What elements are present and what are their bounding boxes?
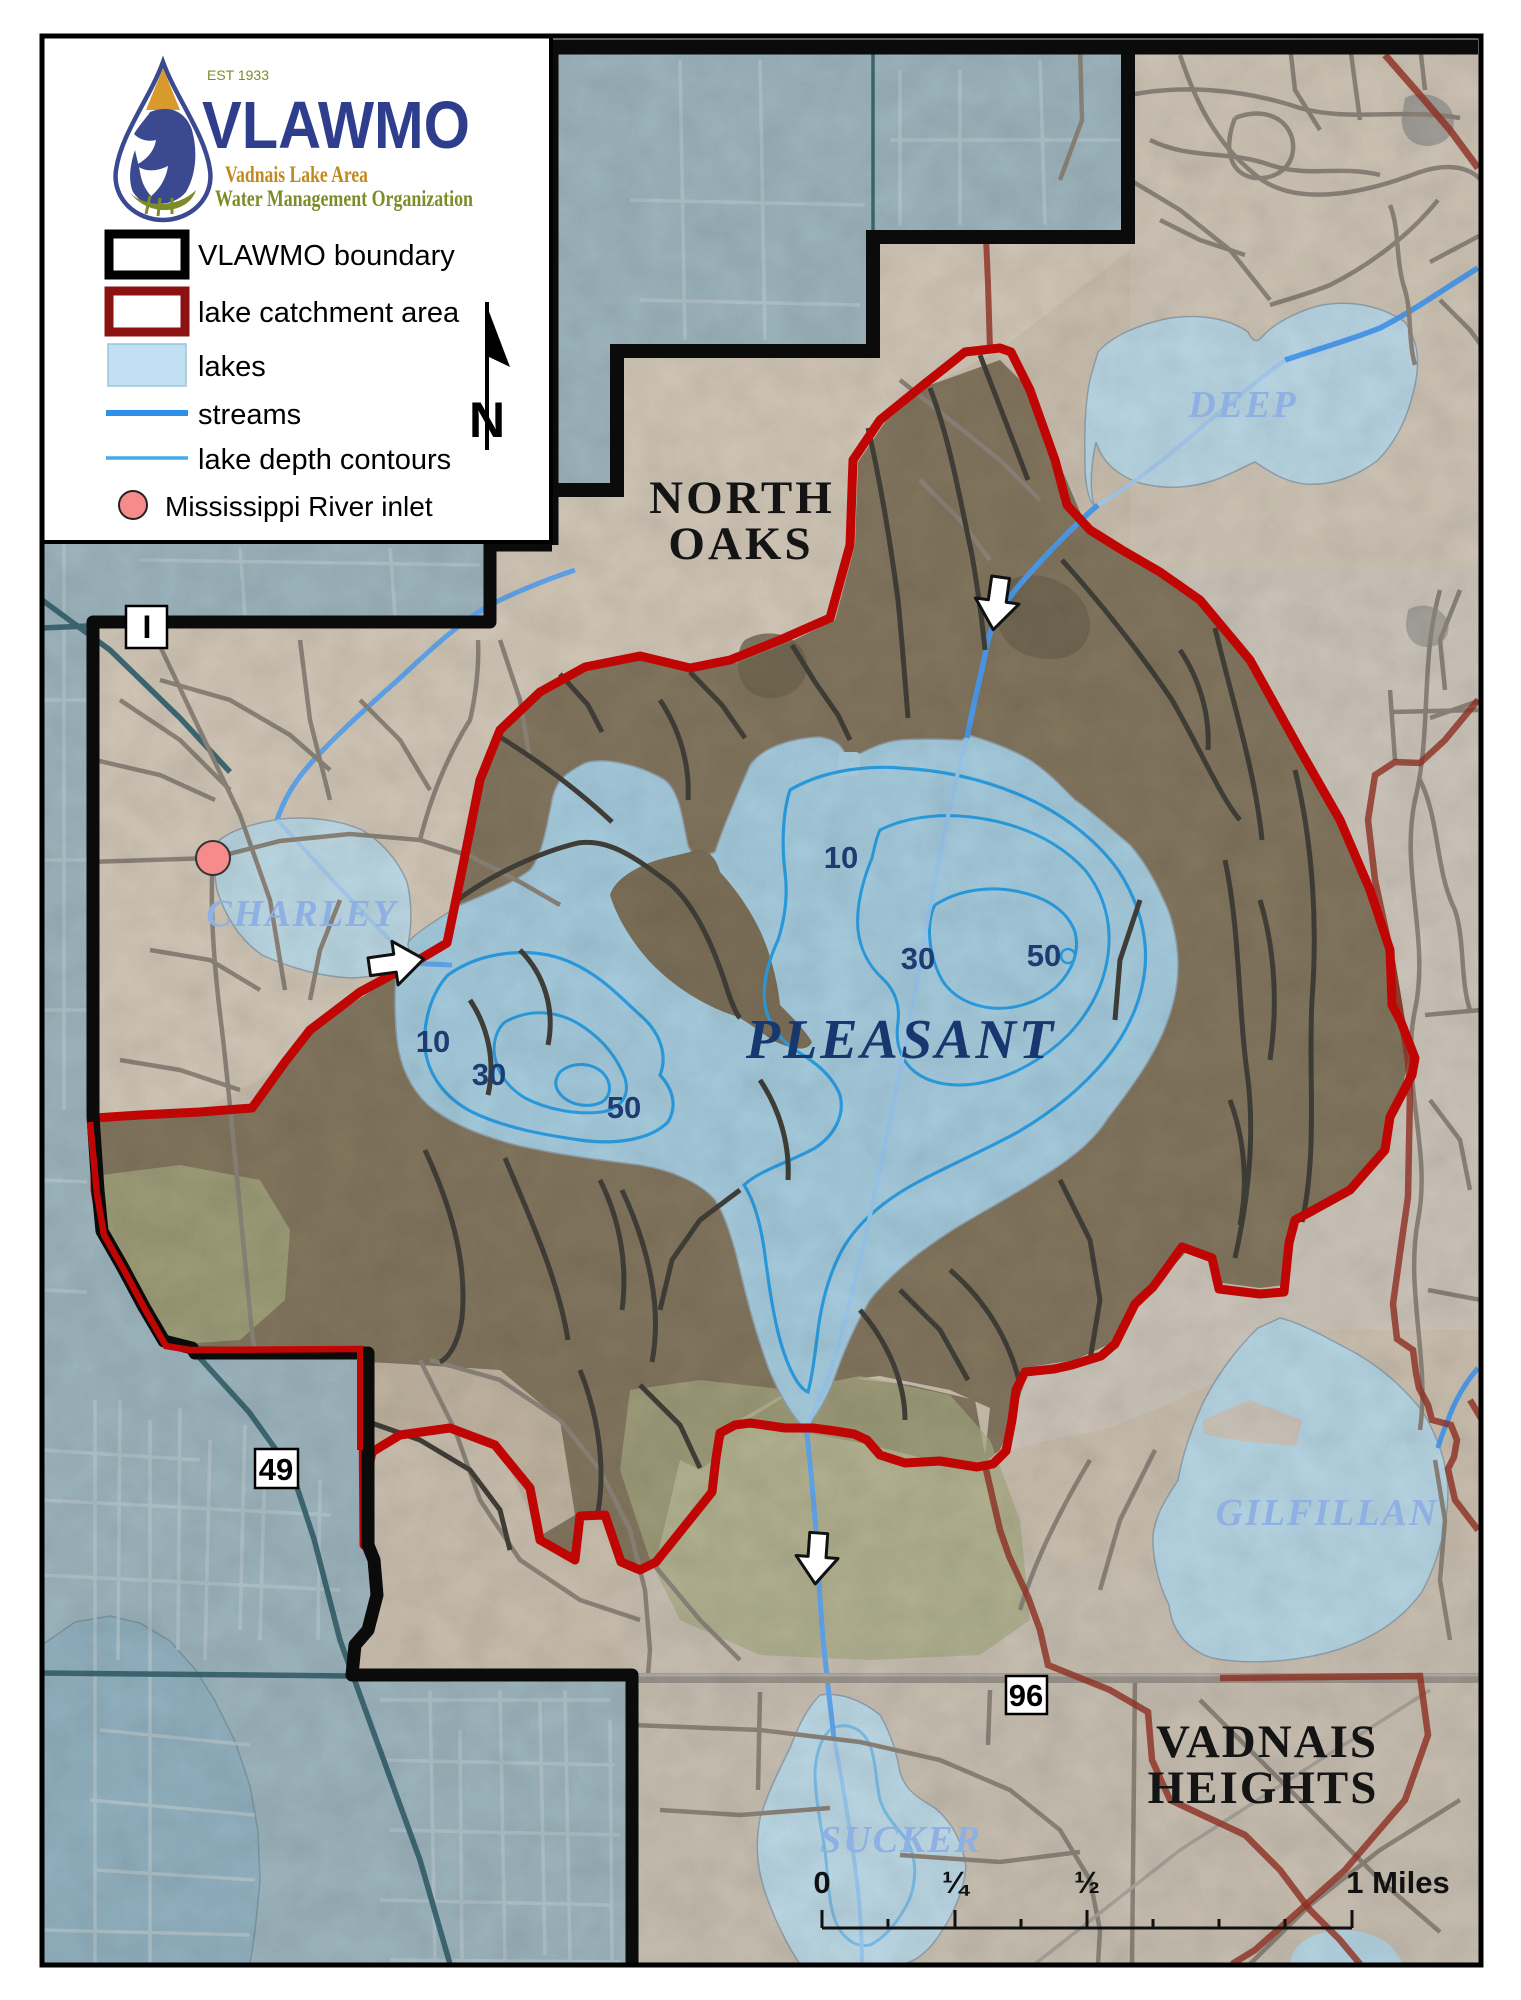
svg-text:50: 50 bbox=[1027, 938, 1061, 973]
svg-text:DEEP: DEEP bbox=[1187, 384, 1297, 426]
svg-text:NORTH: NORTH bbox=[649, 472, 835, 524]
svg-text:Mississippi River inlet: Mississippi River inlet bbox=[165, 491, 433, 522]
svg-text:CHARLEY: CHARLEY bbox=[206, 893, 399, 935]
svg-text:SUCKER: SUCKER bbox=[820, 1819, 982, 1861]
svg-text:10: 10 bbox=[824, 840, 858, 875]
svg-text:lake depth contours: lake depth contours bbox=[198, 444, 451, 476]
svg-text:96: 96 bbox=[1009, 1678, 1043, 1713]
svg-text:50: 50 bbox=[607, 1090, 641, 1125]
svg-text:HEIGHTS: HEIGHTS bbox=[1148, 1762, 1379, 1814]
svg-text:1 Miles: 1 Miles bbox=[1346, 1865, 1449, 1900]
svg-text:I: I bbox=[143, 609, 152, 645]
svg-text:¼: ¼ bbox=[942, 1865, 970, 1900]
svg-text:Vadnais Lake Area: Vadnais Lake Area bbox=[225, 162, 368, 187]
svg-text:VLAWMO boundary: VLAWMO boundary bbox=[198, 240, 455, 272]
svg-text:VLAWMO: VLAWMO bbox=[202, 88, 470, 163]
svg-text:OAKS: OAKS bbox=[668, 518, 813, 570]
svg-text:10: 10 bbox=[416, 1024, 450, 1059]
svg-text:N: N bbox=[469, 392, 505, 448]
svg-text:0: 0 bbox=[813, 1865, 830, 1900]
svg-text:lakes: lakes bbox=[198, 351, 266, 383]
svg-text:EST 1933: EST 1933 bbox=[207, 67, 269, 83]
svg-text:lake catchment area: lake catchment area bbox=[198, 297, 460, 329]
svg-text:Water Management Organization: Water Management Organization bbox=[215, 186, 473, 211]
svg-text:30: 30 bbox=[901, 941, 935, 976]
svg-text:streams: streams bbox=[198, 399, 301, 431]
svg-text:GILFILLAN: GILFILLAN bbox=[1216, 1492, 1439, 1534]
svg-text:49: 49 bbox=[259, 1452, 293, 1487]
svg-text:½: ½ bbox=[1074, 1865, 1100, 1900]
svg-text:PLEASANT: PLEASANT bbox=[745, 1009, 1056, 1071]
svg-text:VADNAIS: VADNAIS bbox=[1156, 1716, 1378, 1768]
svg-text:30: 30 bbox=[472, 1057, 506, 1092]
